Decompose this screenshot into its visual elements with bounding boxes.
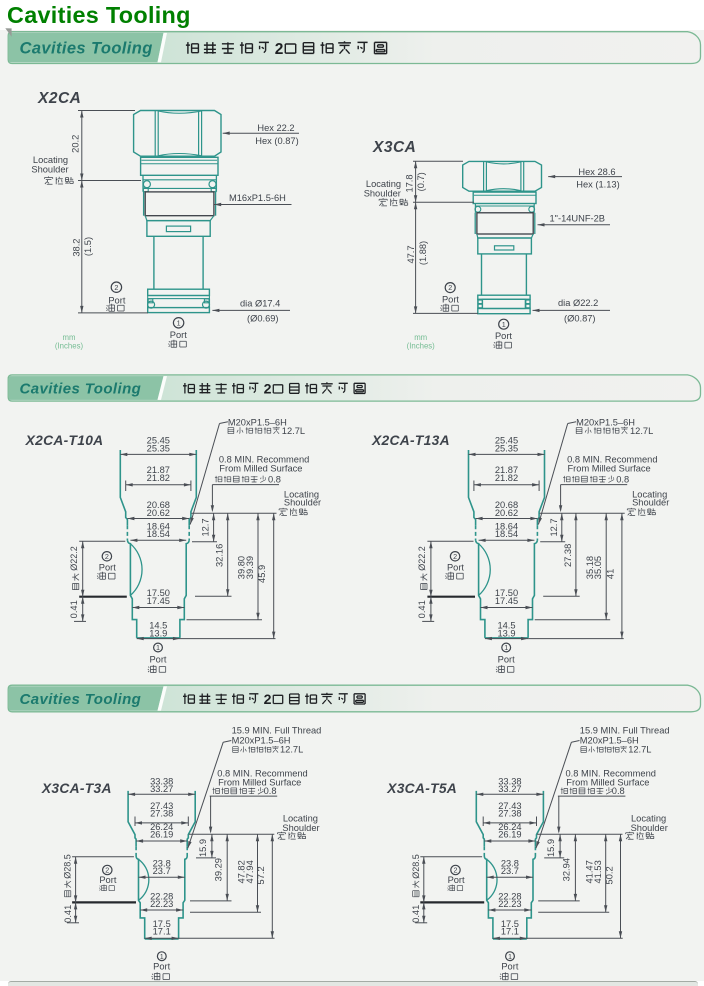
svg-text:2: 2 xyxy=(275,41,284,58)
svg-text:25.35: 25.35 xyxy=(495,443,518,453)
svg-text:12.7L: 12.7L xyxy=(280,745,303,755)
svg-text:12.7L: 12.7L xyxy=(630,426,653,436)
svg-text:X2CA: X2CA xyxy=(37,90,81,107)
svg-text:33.27: 33.27 xyxy=(150,784,173,794)
svg-text:2: 2 xyxy=(454,866,458,875)
svg-text:1: 1 xyxy=(177,318,181,327)
svg-text:From Milled Surface: From Milled Surface xyxy=(566,778,649,788)
svg-text:27.38: 27.38 xyxy=(498,808,521,818)
svg-text:22.23: 22.23 xyxy=(498,899,521,909)
svg-text:0.8: 0.8 xyxy=(264,786,277,796)
svg-text:Port: Port xyxy=(448,875,465,885)
svg-text:dia Ø17.4: dia Ø17.4 xyxy=(240,298,280,308)
svg-text:12.7L: 12.7L xyxy=(628,745,651,755)
svg-text:23.7: 23.7 xyxy=(153,866,171,876)
svg-text:39.39: 39.39 xyxy=(245,556,255,579)
svg-text:1: 1 xyxy=(508,952,512,961)
svg-text:20.2: 20.2 xyxy=(70,135,80,153)
svg-text:(1.88): (1.88) xyxy=(418,241,428,265)
svg-text:41: 41 xyxy=(605,569,615,579)
svg-text:0.8: 0.8 xyxy=(612,786,625,796)
svg-text:22.23: 22.23 xyxy=(150,899,173,909)
svg-text:Cavities Tooling: Cavities Tooling xyxy=(20,40,153,58)
svg-text:33.27: 33.27 xyxy=(498,784,521,794)
svg-text:12.7: 12.7 xyxy=(549,518,559,536)
svg-text:Cavities Tooling: Cavities Tooling xyxy=(20,691,142,708)
svg-text:17.8: 17.8 xyxy=(404,174,414,192)
svg-text:Shoulder: Shoulder xyxy=(31,165,68,175)
svg-text:Hex 28.6: Hex 28.6 xyxy=(578,167,615,177)
svg-text:1"-14UNF-2B: 1"-14UNF-2B xyxy=(550,214,605,224)
svg-text:Port: Port xyxy=(501,962,518,972)
svg-text:Port: Port xyxy=(447,562,464,572)
svg-text:0.8: 0.8 xyxy=(268,474,281,484)
svg-text:2: 2 xyxy=(105,552,109,561)
svg-text:Port: Port xyxy=(153,962,170,972)
svg-text:38.2: 38.2 xyxy=(71,239,81,257)
svg-text:57.2: 57.2 xyxy=(256,866,266,884)
svg-text:32.16: 32.16 xyxy=(215,544,225,567)
svg-text:13.9: 13.9 xyxy=(149,628,167,638)
svg-text:2: 2 xyxy=(448,283,452,292)
svg-text:26.19: 26.19 xyxy=(498,830,521,840)
svg-text:27.38: 27.38 xyxy=(150,808,173,818)
svg-text:Locating: Locating xyxy=(33,155,68,165)
svg-text:Locating: Locating xyxy=(631,813,666,823)
svg-text:Port: Port xyxy=(495,331,512,341)
svg-text:M20xP1.5–6H: M20xP1.5–6H xyxy=(228,418,287,428)
svg-text:47.7: 47.7 xyxy=(406,245,416,263)
svg-text:M20xP1.5–6H: M20xP1.5–6H xyxy=(576,418,635,428)
svg-text:Port: Port xyxy=(498,655,515,665)
svg-text:17.1: 17.1 xyxy=(501,927,519,937)
svg-text:20.62: 20.62 xyxy=(495,508,518,518)
svg-text:26.19: 26.19 xyxy=(150,830,173,840)
svg-text:21.82: 21.82 xyxy=(147,473,170,483)
svg-text:(0.7): (0.7) xyxy=(416,172,426,191)
svg-text:Locating: Locating xyxy=(366,179,401,189)
svg-text:39.29: 39.29 xyxy=(213,858,223,881)
svg-text:25.35: 25.35 xyxy=(147,443,170,453)
svg-text:0.41: 0.41 xyxy=(411,905,421,923)
svg-text:15.9: 15.9 xyxy=(198,839,208,857)
svg-text:From Milled Surface: From Milled Surface xyxy=(219,464,302,474)
svg-text:47.94: 47.94 xyxy=(245,860,255,883)
svg-text:Shoulder: Shoulder xyxy=(282,823,319,833)
svg-text:50.2: 50.2 xyxy=(604,866,614,884)
svg-text:2: 2 xyxy=(264,381,272,397)
svg-text:Port: Port xyxy=(442,294,459,304)
svg-text:15.9 MIN. Full Thread: 15.9 MIN. Full Thread xyxy=(580,726,670,736)
svg-text:Locating: Locating xyxy=(283,813,318,823)
svg-text:21.82: 21.82 xyxy=(495,473,518,483)
svg-text:Port: Port xyxy=(170,330,187,340)
svg-text:45.9: 45.9 xyxy=(257,565,267,583)
svg-text:12.7L: 12.7L xyxy=(282,426,305,436)
svg-text:(Ø0.87): (Ø0.87) xyxy=(564,313,596,323)
svg-text:20.62: 20.62 xyxy=(147,508,170,518)
svg-text:0.8: 0.8 xyxy=(616,474,629,484)
svg-text:Hex (1.13): Hex (1.13) xyxy=(576,180,619,190)
svg-text:1: 1 xyxy=(504,643,508,652)
svg-text:X3CA: X3CA xyxy=(372,139,416,156)
svg-text:35.05: 35.05 xyxy=(593,556,603,579)
svg-text:15.9: 15.9 xyxy=(546,839,556,857)
svg-text:X2CA-T10A: X2CA-T10A xyxy=(25,433,104,448)
svg-text:Shoulder: Shoulder xyxy=(631,823,668,833)
svg-text:Hex 22.2: Hex 22.2 xyxy=(257,123,294,133)
svg-text:2: 2 xyxy=(453,552,457,561)
svg-text:0.41: 0.41 xyxy=(63,905,73,923)
svg-text:Port: Port xyxy=(108,295,125,305)
svg-text:(1.5): (1.5) xyxy=(83,237,93,256)
svg-text:2: 2 xyxy=(105,866,109,875)
svg-text:17.45: 17.45 xyxy=(147,596,170,606)
svg-text:23.7: 23.7 xyxy=(501,866,519,876)
svg-text:1: 1 xyxy=(502,320,506,329)
svg-text:(Ø0.69): (Ø0.69) xyxy=(247,313,279,323)
svg-text:Port: Port xyxy=(149,655,166,665)
svg-text:1: 1 xyxy=(160,952,164,961)
svg-text:0.41: 0.41 xyxy=(417,600,427,618)
svg-text:X2CA-T13A: X2CA-T13A xyxy=(371,433,450,448)
svg-text:15.9 MIN. Full Thread: 15.9 MIN. Full Thread xyxy=(232,726,322,736)
svg-text:Shoulder: Shoulder xyxy=(632,498,669,508)
svg-text:17.1: 17.1 xyxy=(153,927,171,937)
svg-text:17.45: 17.45 xyxy=(495,596,518,606)
svg-text:13.9: 13.9 xyxy=(497,628,515,638)
svg-text:12.7: 12.7 xyxy=(201,518,211,536)
svg-text:From Milled Surface: From Milled Surface xyxy=(568,464,651,474)
svg-text:From Milled Surface: From Milled Surface xyxy=(218,778,301,788)
svg-text:(Inches): (Inches) xyxy=(55,342,84,351)
svg-text:Ø28.5: Ø28.5 xyxy=(63,854,73,879)
svg-text:Ø22.2: Ø22.2 xyxy=(69,546,79,571)
svg-text:27.38: 27.38 xyxy=(563,544,573,567)
svg-text:1: 1 xyxy=(156,643,160,652)
svg-text:2: 2 xyxy=(114,283,118,292)
svg-text:0.41: 0.41 xyxy=(69,600,79,618)
svg-text:41.53: 41.53 xyxy=(593,860,603,883)
svg-text:Shoulder: Shoulder xyxy=(364,189,401,199)
svg-text:M16xP1.5-6H: M16xP1.5-6H xyxy=(229,193,286,203)
svg-text:dia Ø22.2: dia Ø22.2 xyxy=(558,298,598,308)
svg-text:2: 2 xyxy=(264,691,272,707)
svg-text:Ø22.2: Ø22.2 xyxy=(417,546,427,571)
svg-text:Ø28.5: Ø28.5 xyxy=(411,854,421,879)
svg-text:Shoulder: Shoulder xyxy=(284,498,321,508)
svg-text:Port: Port xyxy=(99,562,116,572)
svg-text:Hex (0.87): Hex (0.87) xyxy=(255,136,298,146)
svg-text:18.54: 18.54 xyxy=(147,529,170,539)
svg-text:32.94: 32.94 xyxy=(562,858,572,881)
svg-text:Port: Port xyxy=(99,875,116,885)
svg-text:(Inches): (Inches) xyxy=(407,342,436,351)
svg-text:18.54: 18.54 xyxy=(495,529,518,539)
svg-text:Cavities Tooling: Cavities Tooling xyxy=(20,380,142,397)
svg-text:X3CA-T3A: X3CA-T3A xyxy=(41,781,112,796)
svg-text:X3CA-T5A: X3CA-T5A xyxy=(386,781,457,796)
